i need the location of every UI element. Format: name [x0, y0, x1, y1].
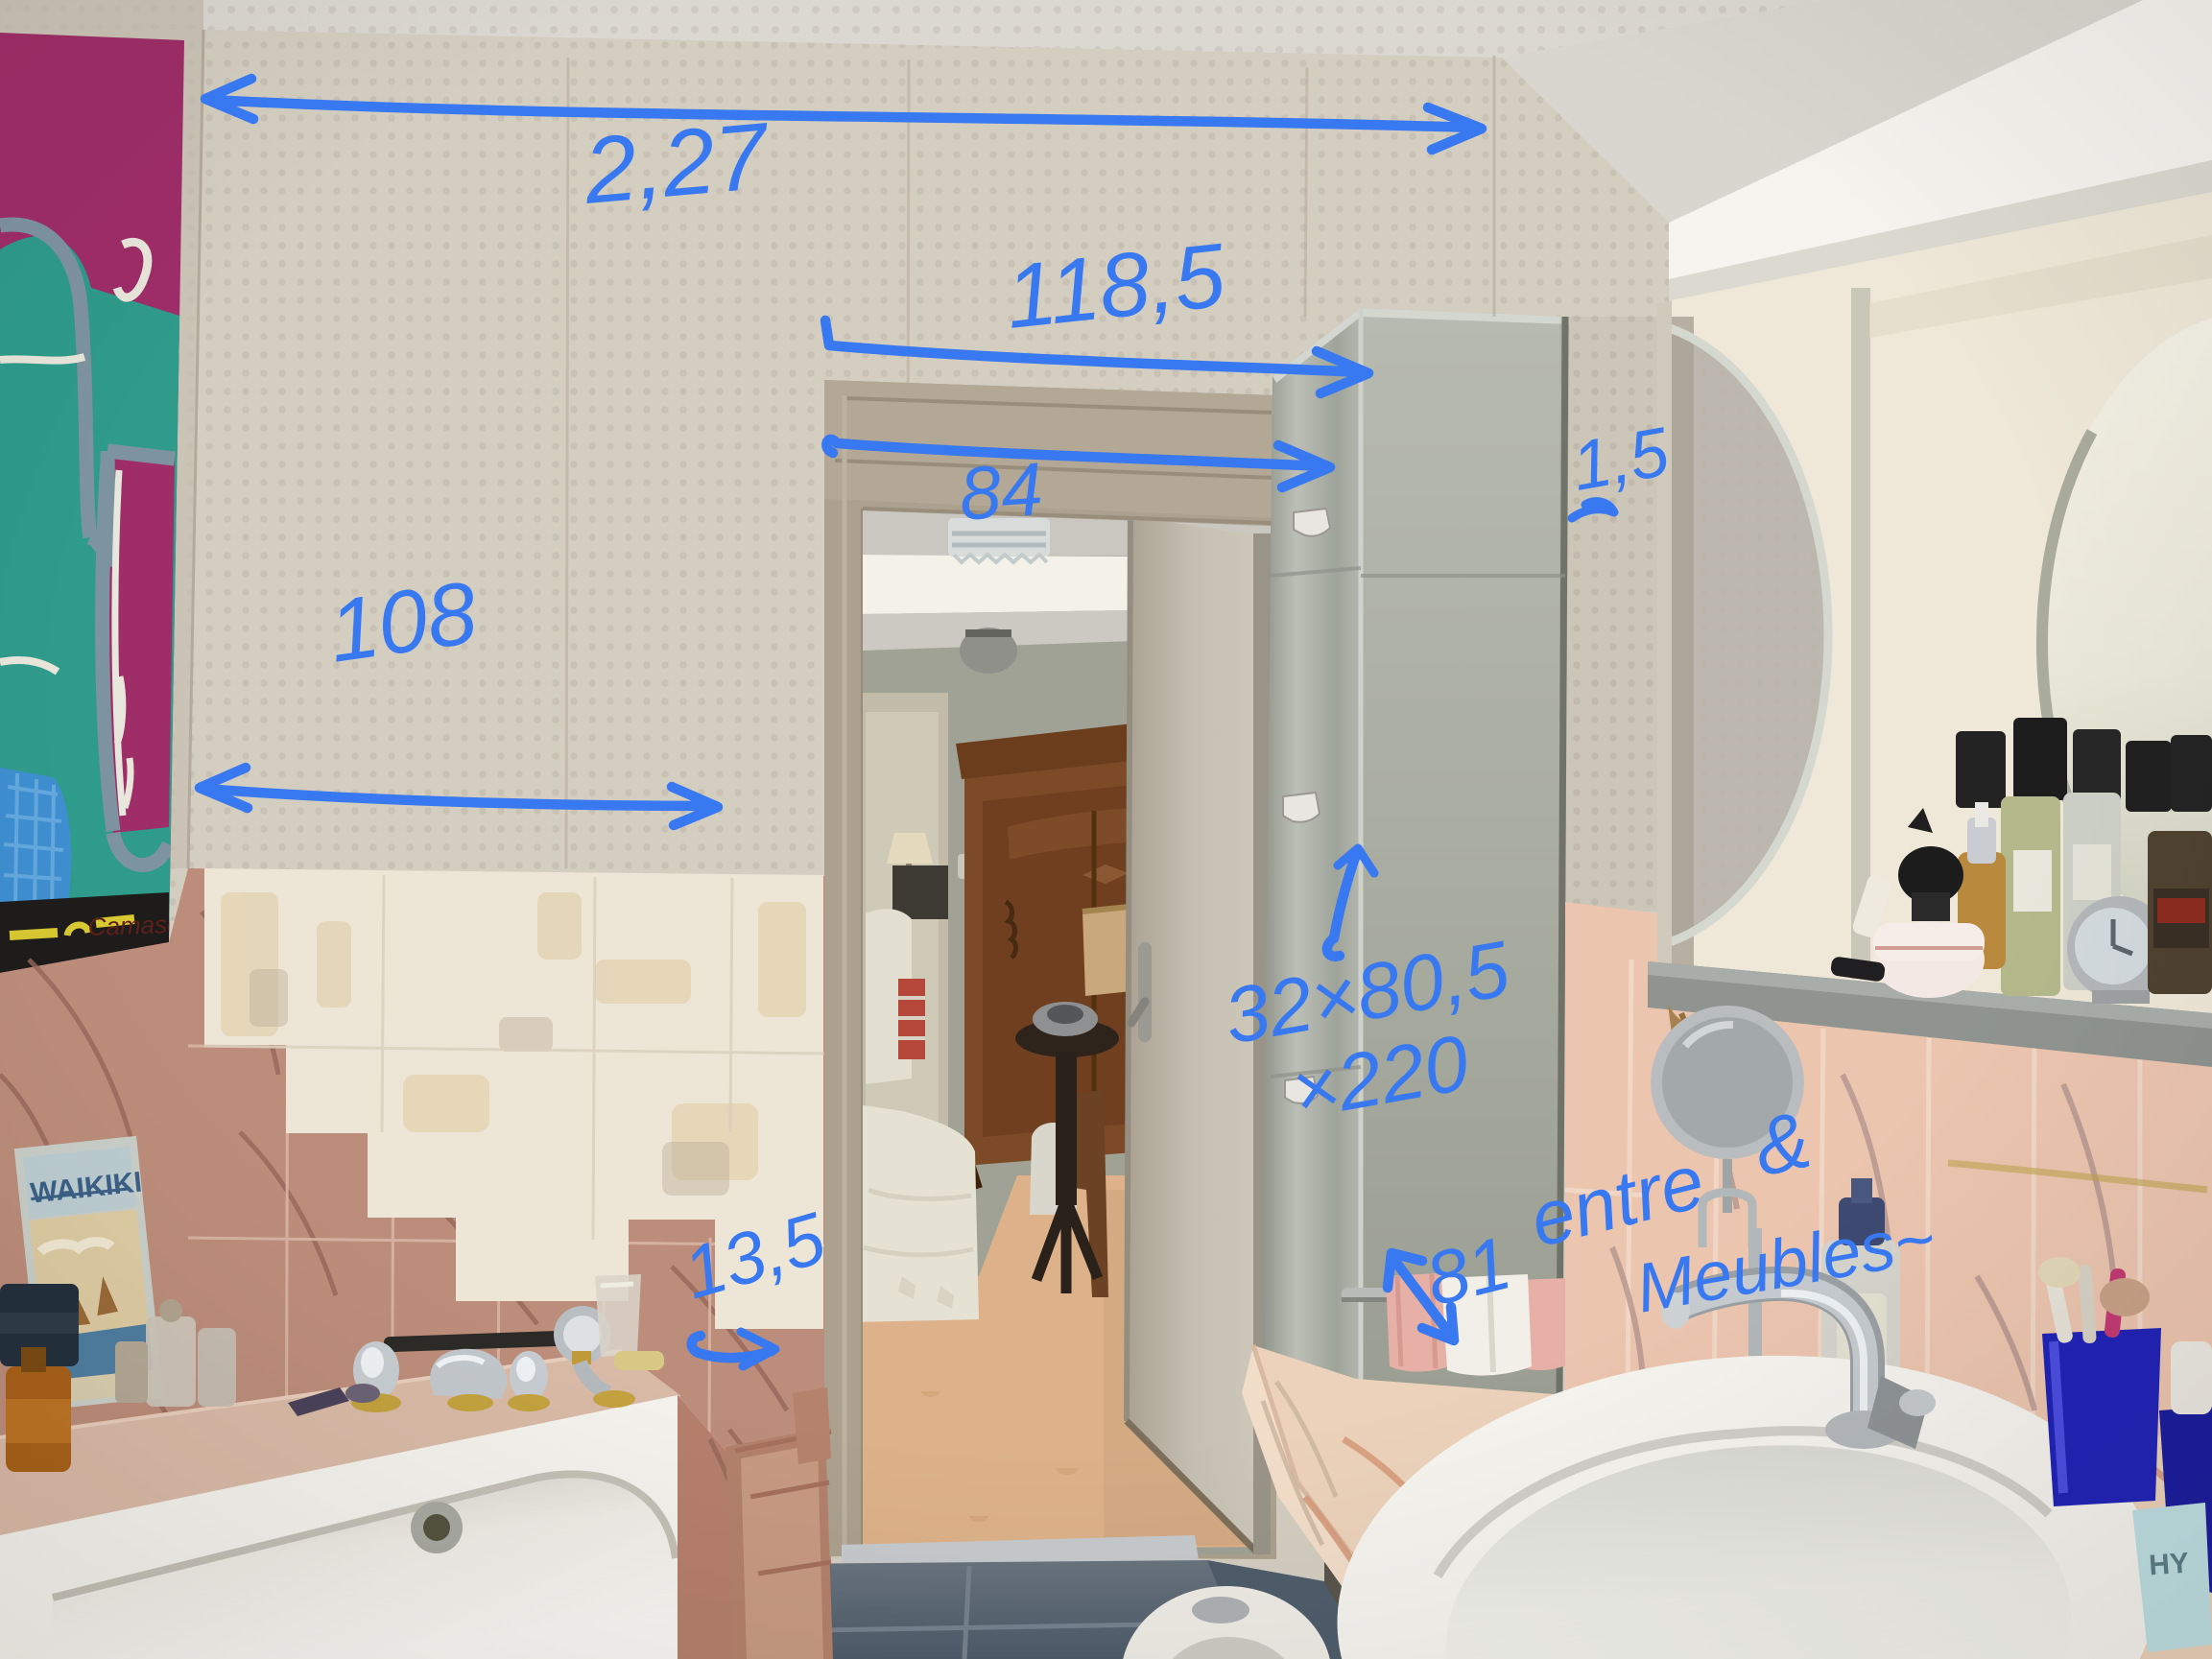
svg-text:108: 108 [323, 563, 483, 680]
svg-text:84: 84 [957, 446, 1046, 536]
svg-text:2,27: 2,27 [579, 102, 774, 224]
